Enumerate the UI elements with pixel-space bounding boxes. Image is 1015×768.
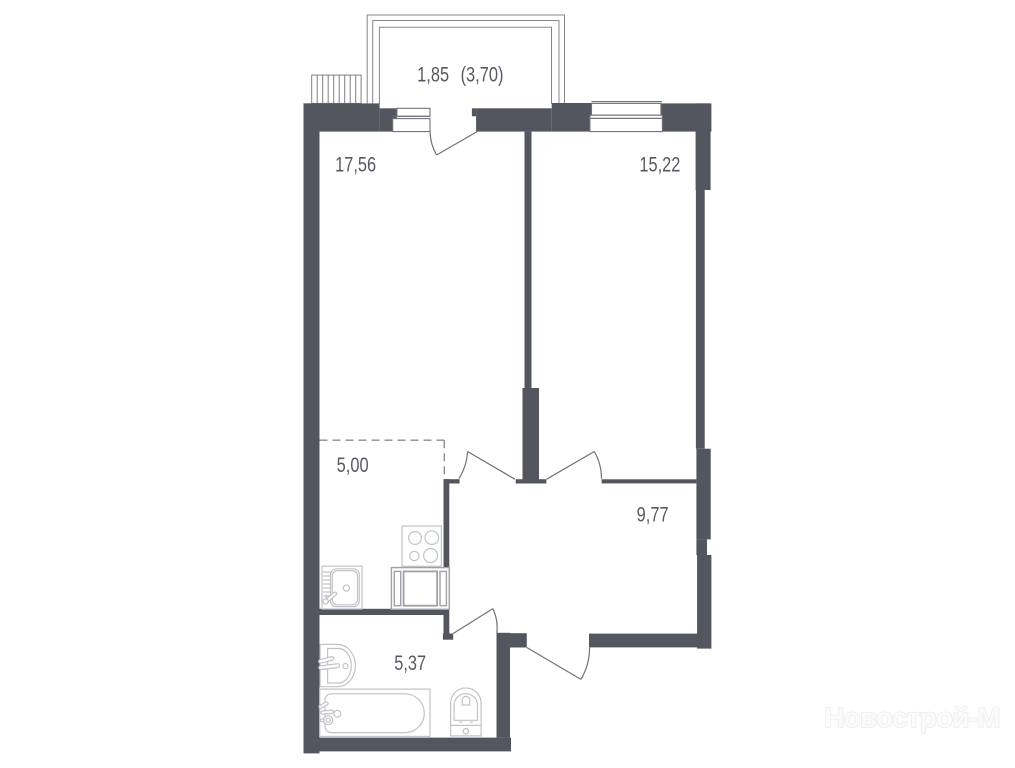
svg-text:5,00: 5,00 (337, 454, 369, 478)
svg-text:5,37: 5,37 (394, 652, 426, 676)
svg-text:1,85 (3,70): 1,85 (3,70) (417, 63, 503, 87)
svg-text:9,77: 9,77 (637, 504, 669, 528)
svg-text:Новострой-М: Новострой-М (824, 702, 999, 733)
svg-text:15,22: 15,22 (639, 154, 680, 178)
svg-text:17,56: 17,56 (335, 154, 376, 178)
